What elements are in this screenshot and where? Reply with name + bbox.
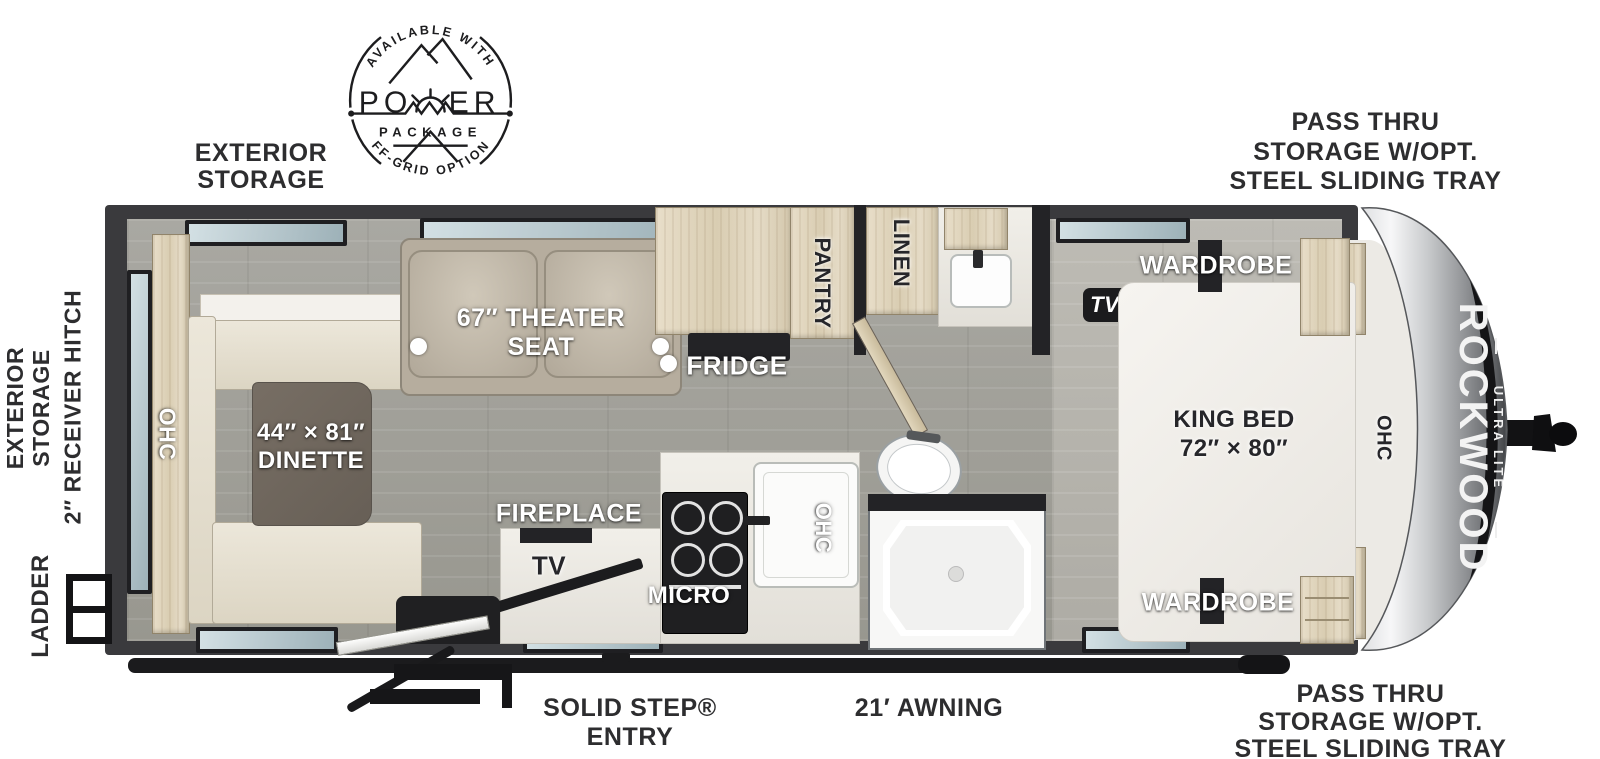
badge-mountains-icon (389, 39, 471, 83)
label-awning: 21′ AWNING (849, 694, 1009, 723)
label-wardrobe-top: WARDROBE (1140, 252, 1293, 281)
label-linen: LINEN (888, 219, 914, 288)
brand-rockwood: ROCKWOOD (1451, 303, 1495, 574)
bath-vanity-cabinet (944, 208, 1008, 250)
label-ladder: LADDER (27, 554, 55, 658)
label-dinette: 44″ × 81″ DINETTE (257, 419, 365, 475)
label-fireplace: FIREPLACE (496, 500, 642, 529)
range-stove (662, 492, 748, 634)
burner-icon (709, 543, 743, 577)
label-king-bed: KING BED 72″ × 80″ (1173, 405, 1294, 463)
wardrobe-cabinet-bottom (1300, 576, 1354, 644)
kitchen-faucet-icon (744, 516, 770, 525)
entry-step-leg (502, 664, 512, 708)
awning-end-cap (1238, 655, 1290, 674)
cupholder-icon (652, 338, 669, 355)
wall-bath-bedroom (1032, 205, 1050, 355)
burner-icon (709, 501, 743, 535)
entry-step-1 (394, 664, 512, 680)
awning-bracket (602, 653, 630, 662)
dinette-bench-top (212, 320, 422, 390)
brand-ultra-lite: ULTRA LITE (1491, 386, 1506, 490)
front-cap: ROCKWOOD ULTRA LITE (1348, 198, 1580, 662)
label-pantry: PANTRY (809, 238, 835, 329)
window-bedroom-top (1056, 218, 1190, 243)
floorplan-diagram: AVAILABLE WITH OFF-GRID OPTIONS PO ER PA… (0, 0, 1600, 759)
label-exterior-storage-side: EXTERIOR STORAGE (2, 347, 54, 469)
awning-rail (128, 658, 1288, 673)
burner-icon (671, 501, 705, 535)
label-rear-ohc: OHC (154, 408, 181, 461)
dinette-overhead-cabinet (200, 294, 424, 322)
fireplace-insert (520, 528, 592, 543)
label-pass-thru-bottom: PASS THRU STORAGE W/OPT. STEEL SLIDING T… (1208, 681, 1533, 759)
window-dinette-top (185, 220, 347, 246)
shower-drain-icon (948, 566, 964, 582)
label-solid-step-entry: SOLID STEP® ENTRY (500, 694, 760, 752)
wardrobe-cabinet-top (1300, 238, 1350, 336)
hitch-jack-knob (1549, 422, 1577, 446)
label-kitchen-ohc: OHC (810, 503, 836, 553)
label-micro: MICRO (648, 582, 731, 610)
dinette-bench-bottom (212, 522, 422, 624)
label-fridge: FRIDGE (686, 351, 787, 382)
ladder-icon (66, 574, 112, 644)
window-rear (127, 270, 152, 594)
label-wardrobe-bottom: WARDROBE (1142, 589, 1295, 618)
label-pass-thru-top: PASS THRU STORAGE W/OPT. STEEL SLIDING T… (1203, 108, 1528, 197)
fridge-cabinet (655, 207, 793, 335)
bath-faucet-icon (973, 250, 983, 268)
entry-step-2 (370, 689, 480, 704)
burner-icon (671, 543, 705, 577)
kitchen-sink (753, 462, 859, 588)
label-theater-seat: 67″ THEATER SEAT (457, 304, 625, 362)
label-exterior-storage-top: EXTERIOR STORAGE (141, 140, 381, 194)
label-tv: TV (532, 551, 566, 582)
detector-icon (660, 355, 677, 372)
label-receiver-hitch: 2″ RECEIVER HITCH (60, 290, 87, 525)
shower (868, 494, 1046, 650)
cupholder-icon (410, 338, 427, 355)
shower-door-track (868, 494, 1046, 511)
window-dinette-bottom (196, 627, 338, 653)
